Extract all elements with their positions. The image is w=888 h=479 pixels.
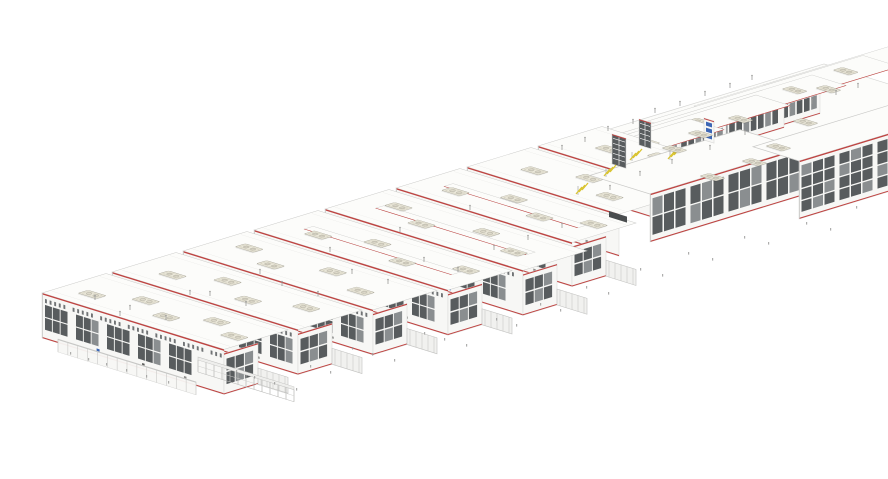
window-panel bbox=[385, 327, 393, 342]
ground-tick bbox=[806, 222, 807, 225]
window-panel bbox=[185, 348, 192, 362]
window-panel bbox=[310, 347, 318, 362]
clerestory-window bbox=[45, 299, 47, 304]
window-panel bbox=[84, 317, 91, 331]
antenna-tip bbox=[209, 291, 211, 293]
window-panel bbox=[740, 169, 750, 190]
clerestory-window bbox=[137, 327, 139, 332]
window-panel bbox=[460, 294, 468, 309]
clerestory-window bbox=[290, 332, 292, 337]
clerestory-window bbox=[192, 345, 194, 350]
window-panel bbox=[729, 172, 739, 193]
window-panel bbox=[53, 320, 60, 334]
window-panel bbox=[420, 305, 427, 319]
antenna-tip bbox=[423, 257, 425, 259]
antenna-tip bbox=[165, 315, 167, 317]
clerestory-window bbox=[285, 331, 287, 336]
clerestory-window bbox=[128, 325, 130, 330]
clerestory-window bbox=[188, 343, 190, 348]
window-panel bbox=[123, 329, 130, 343]
window-panel bbox=[115, 327, 122, 341]
ground-tick bbox=[394, 359, 395, 362]
end-gable bbox=[572, 236, 606, 286]
window-panel bbox=[752, 165, 762, 186]
ground-tick bbox=[372, 353, 373, 356]
window-panel bbox=[185, 361, 192, 375]
antenna-tip bbox=[671, 159, 673, 161]
link-structure bbox=[557, 289, 587, 314]
ground-tick bbox=[274, 382, 275, 385]
window-panel bbox=[107, 324, 114, 338]
clerestory-window bbox=[215, 352, 217, 357]
window-panel bbox=[460, 308, 468, 323]
clerestory-window bbox=[73, 307, 75, 312]
antenna-tip bbox=[399, 227, 401, 229]
antenna-tip bbox=[751, 75, 753, 77]
window-panel bbox=[76, 328, 83, 342]
window-panel bbox=[341, 324, 348, 338]
window-panel bbox=[428, 295, 435, 309]
antenna-tip bbox=[704, 91, 706, 93]
clerestory-window bbox=[361, 311, 363, 316]
window-panel bbox=[357, 316, 364, 330]
window-panel bbox=[61, 310, 68, 324]
clerestory-window bbox=[155, 333, 157, 338]
antenna-tip bbox=[584, 137, 586, 139]
clerestory-window bbox=[54, 302, 56, 307]
window-panel bbox=[544, 285, 552, 300]
clerestory-window bbox=[169, 337, 171, 342]
window-panel bbox=[664, 211, 674, 232]
window-panel bbox=[169, 356, 176, 370]
ground-tick bbox=[560, 309, 561, 312]
window-panel bbox=[394, 311, 402, 326]
window-panel bbox=[691, 184, 701, 205]
antenna-tip bbox=[493, 245, 495, 247]
link-structure bbox=[482, 309, 512, 334]
ground-tick bbox=[744, 236, 745, 239]
window-panel bbox=[740, 188, 750, 209]
window-panel bbox=[702, 180, 712, 201]
antenna-tip bbox=[469, 205, 471, 207]
clerestory-window bbox=[100, 316, 102, 321]
ground-tick bbox=[352, 347, 353, 350]
clerestory-window bbox=[91, 313, 93, 318]
clerestory-window bbox=[201, 347, 203, 352]
window-panel bbox=[154, 352, 161, 366]
window-panel bbox=[45, 318, 52, 332]
window-panel bbox=[349, 326, 356, 340]
window-panel bbox=[767, 160, 777, 181]
ground-tick bbox=[106, 363, 107, 366]
window-panel bbox=[115, 340, 122, 354]
window-panel bbox=[376, 330, 384, 345]
antenna-tip bbox=[129, 305, 131, 307]
antenna-tip bbox=[245, 301, 247, 303]
clerestory-window bbox=[197, 346, 199, 351]
antenna-tip bbox=[561, 223, 563, 225]
antenna-tip bbox=[744, 130, 746, 132]
window-panel bbox=[483, 282, 490, 296]
window-panel bbox=[790, 172, 800, 193]
window-panel bbox=[653, 195, 663, 216]
ground-tick bbox=[254, 376, 255, 379]
clerestory-window bbox=[160, 335, 162, 340]
window-panel bbox=[451, 310, 459, 325]
window-panel bbox=[278, 347, 285, 361]
window-panel bbox=[778, 157, 788, 178]
window-panel bbox=[286, 337, 293, 351]
clerestory-window bbox=[512, 272, 514, 277]
antenna-tip bbox=[351, 269, 353, 271]
clerestory-window bbox=[436, 292, 438, 297]
window-panel bbox=[752, 184, 762, 205]
antenna-tip bbox=[789, 107, 791, 109]
window-panel bbox=[169, 343, 176, 357]
clerestory-window bbox=[365, 313, 367, 318]
link-structure bbox=[606, 260, 636, 285]
window-panel bbox=[138, 347, 145, 361]
window-panel bbox=[138, 334, 145, 348]
window-panel bbox=[301, 350, 309, 365]
ground-tick bbox=[608, 292, 609, 295]
clerestory-window bbox=[63, 305, 65, 310]
ground-tick bbox=[768, 242, 769, 245]
ground-tick bbox=[330, 371, 331, 374]
window-panel bbox=[177, 359, 184, 373]
clerestory-window bbox=[119, 322, 121, 327]
clerestory-window bbox=[146, 330, 148, 335]
window-panel bbox=[84, 330, 91, 344]
window-panel bbox=[92, 332, 99, 346]
clerestory-window bbox=[441, 293, 443, 298]
window-panel bbox=[729, 191, 739, 212]
antenna-tip bbox=[607, 126, 609, 128]
window-panel bbox=[676, 207, 686, 228]
clerestory-window bbox=[132, 326, 134, 331]
window-panel bbox=[146, 336, 153, 350]
window-panel bbox=[286, 350, 293, 364]
ground-tick bbox=[688, 252, 689, 255]
window-panel bbox=[778, 176, 788, 197]
window-panel bbox=[310, 334, 318, 349]
antenna-tip bbox=[632, 119, 634, 121]
window-panel bbox=[270, 345, 277, 359]
window-panel bbox=[53, 307, 60, 321]
window-panel bbox=[691, 203, 701, 224]
clerestory-window bbox=[82, 310, 84, 315]
tower-dark-1 bbox=[612, 134, 626, 168]
window-panel bbox=[790, 102, 796, 117]
antenna-tip bbox=[729, 83, 731, 85]
link-structure bbox=[332, 348, 362, 373]
antenna-tip bbox=[679, 101, 681, 103]
building-axonometric-view bbox=[0, 0, 888, 479]
clerestory-window bbox=[165, 336, 167, 341]
ground-tick bbox=[296, 388, 297, 391]
window-panel bbox=[301, 336, 309, 351]
clerestory-window bbox=[174, 339, 176, 344]
ground-tick bbox=[168, 381, 169, 384]
window-panel bbox=[526, 291, 534, 306]
ground-tick bbox=[466, 344, 467, 347]
ground-tick bbox=[662, 274, 663, 277]
window-panel bbox=[394, 325, 402, 340]
ground-tick bbox=[640, 268, 641, 271]
antenna-tip bbox=[119, 311, 121, 313]
window-panel bbox=[146, 349, 153, 363]
window-panel bbox=[92, 319, 99, 333]
window-panel bbox=[76, 315, 83, 329]
tower-dark-2 bbox=[639, 119, 651, 149]
window-panel bbox=[376, 317, 384, 332]
clerestory-window bbox=[142, 329, 144, 334]
clerestory-window bbox=[59, 303, 61, 308]
window-panel bbox=[123, 342, 130, 356]
window-panel bbox=[491, 284, 498, 298]
antenna-tip bbox=[654, 108, 656, 110]
window-panel bbox=[469, 291, 477, 306]
tower-blue bbox=[704, 118, 714, 143]
window-panel bbox=[535, 288, 543, 303]
window-panel bbox=[714, 196, 724, 217]
clerestory-window bbox=[114, 320, 116, 325]
window-panel bbox=[535, 274, 543, 289]
antenna-tip bbox=[317, 291, 319, 293]
ground-tick bbox=[310, 365, 311, 368]
clerestory-window bbox=[220, 353, 222, 358]
window-panel bbox=[664, 192, 674, 213]
antenna-tip bbox=[329, 247, 331, 249]
window-panel bbox=[676, 188, 686, 209]
window-panel bbox=[245, 351, 253, 366]
window-panel bbox=[451, 297, 459, 312]
window-panel bbox=[702, 199, 712, 220]
antenna-tip bbox=[857, 83, 859, 85]
window-panel bbox=[797, 100, 803, 115]
clerestory-window bbox=[77, 309, 79, 314]
antenna-tip bbox=[189, 290, 191, 292]
window-panel bbox=[804, 97, 810, 112]
clerestory-window bbox=[50, 300, 52, 305]
ground-tick bbox=[444, 338, 445, 341]
clerestory-window bbox=[183, 342, 185, 347]
window-panel bbox=[428, 308, 435, 322]
window-panel bbox=[469, 305, 477, 320]
ground-tick bbox=[856, 206, 857, 209]
window-panel bbox=[236, 353, 244, 368]
antenna-tip bbox=[639, 171, 641, 173]
ground-tick bbox=[540, 303, 541, 306]
ground-tick bbox=[126, 369, 127, 372]
ground-tick bbox=[516, 324, 517, 327]
antenna-tip bbox=[457, 267, 459, 269]
window-panel bbox=[177, 346, 184, 360]
ground-tick bbox=[830, 228, 831, 231]
antenna-tip bbox=[259, 269, 261, 271]
antenna-tip bbox=[835, 90, 837, 92]
clerestory-window bbox=[109, 319, 111, 324]
window-panel bbox=[385, 314, 393, 329]
ground-tick bbox=[496, 318, 497, 321]
clerestory-window bbox=[86, 312, 88, 317]
antenna-tip bbox=[709, 145, 711, 147]
antenna-tip bbox=[609, 185, 611, 187]
antenna-tip bbox=[811, 99, 813, 101]
antenna-tip bbox=[387, 279, 389, 281]
window-panel bbox=[412, 303, 419, 317]
clerestory-window bbox=[105, 317, 107, 322]
clerestory-window bbox=[211, 350, 213, 355]
window-panel bbox=[499, 274, 506, 288]
ground-tick bbox=[424, 332, 425, 335]
window-panel bbox=[499, 287, 506, 301]
window-panel bbox=[767, 179, 777, 200]
antenna-tip bbox=[527, 235, 529, 237]
antenna-tip bbox=[94, 295, 96, 297]
window-panel bbox=[526, 277, 534, 292]
window-panel bbox=[107, 337, 114, 351]
ground-tick bbox=[236, 370, 237, 373]
window-panel bbox=[45, 305, 52, 319]
ground-tick bbox=[586, 286, 587, 289]
window-panel bbox=[349, 313, 356, 327]
ground-tick bbox=[146, 375, 147, 378]
antenna-tip bbox=[281, 281, 283, 283]
ground-tick bbox=[70, 352, 71, 355]
window-panel bbox=[544, 272, 552, 287]
window-panel bbox=[154, 339, 161, 353]
window-panel bbox=[61, 323, 68, 337]
rendering-canvas bbox=[0, 0, 888, 479]
window-panel bbox=[278, 334, 285, 348]
window-panel bbox=[319, 331, 327, 346]
link-structure bbox=[407, 329, 437, 354]
window-panel bbox=[319, 344, 327, 359]
ground-tick bbox=[88, 358, 89, 361]
ground-tick bbox=[712, 258, 713, 261]
window-panel bbox=[357, 329, 364, 343]
antenna-tip bbox=[561, 145, 563, 147]
window-panel bbox=[653, 214, 663, 235]
